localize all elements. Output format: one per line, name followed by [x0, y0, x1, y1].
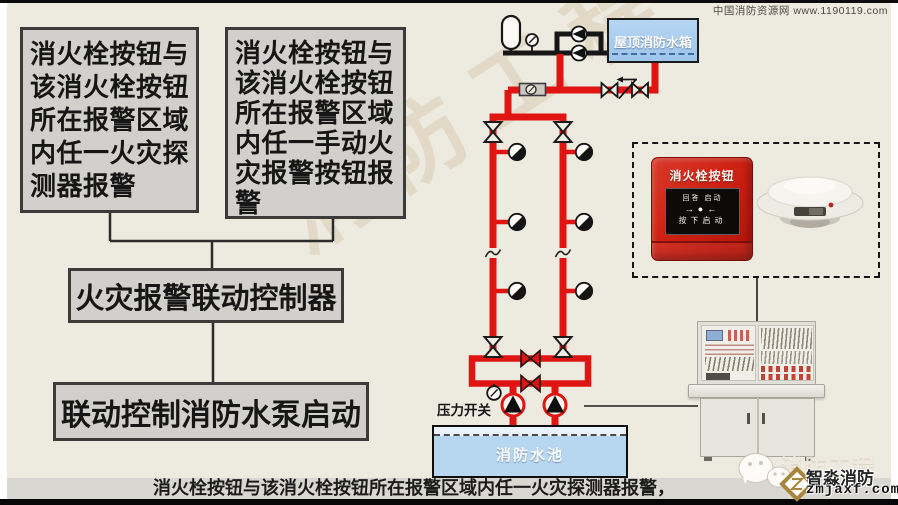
hydrant-button-base — [652, 241, 752, 260]
water-level-line — [612, 53, 694, 55]
cabinet-door-handle — [747, 413, 750, 424]
pipe-break-icons — [486, 250, 571, 258]
fire-water-pool: 消防水池 — [432, 425, 628, 478]
pressure-switch-label: 压力开关 — [437, 399, 491, 419]
slide: 消防工程 — [0, 0, 898, 505]
cabinet-label-rows — [705, 343, 754, 355]
source-watermark: 中国消防资源网 www.1190119.com — [713, 3, 888, 18]
cabinet-left-panel — [701, 325, 756, 381]
check-valve-loop-icons — [572, 27, 587, 61]
controller-box: 火灾报警联动控制器 — [68, 268, 344, 323]
cabinet-indicator-row-2 — [761, 374, 812, 380]
pump-start-box: 联动控制消防水泵启动 — [53, 382, 369, 441]
gate-valve-icons — [485, 122, 572, 357]
condition-box-detector: 消火栓按钮与该消火栓按钮所在报警区域内任一火灾探测器报警 — [20, 27, 199, 213]
cabinet-display — [706, 330, 723, 341]
hydrant-button-indicators: 回答 启动 — [666, 193, 739, 203]
hydrant-outlet-icons — [509, 144, 592, 299]
pressure-gauge-top-icon — [526, 34, 538, 53]
pool-label: 消防水池 — [434, 444, 626, 465]
cabinet-right-panel — [758, 325, 814, 381]
hydrant-button-image: 消火栓按钮 回答 启动 →●← 按下启动 — [651, 157, 753, 261]
pump-control-cabinet-image — [688, 320, 825, 462]
expansion-tank-icon — [502, 16, 520, 53]
cabinet-switch-row-2 — [761, 351, 812, 364]
caption-text: 消火栓按钮与该消火栓按钮所在报警区域内任一火灾探测器报警， — [153, 478, 675, 498]
flow-meter-icon — [520, 84, 546, 96]
cabinet-led-cluster — [728, 330, 750, 341]
hydrant-button-press-label: 按下启动 — [666, 215, 739, 226]
hydrant-button-arrows: →●← — [666, 203, 739, 215]
cabinet-desk-ledge — [688, 384, 825, 398]
cabinet-indicator-row-1 — [761, 366, 812, 372]
brand-site: zmjaxf.com — [806, 482, 898, 498]
red-pipe-network — [472, 54, 655, 427]
roof-tank-label: 屋顶消防水箱 — [614, 32, 692, 51]
fire-pump-icons — [502, 394, 566, 416]
roof-water-tank: 屋顶消防水箱 — [607, 18, 699, 63]
cabinet-door-divider — [757, 398, 759, 457]
condition-box-manual-callpoint: 消火栓按钮与该消火栓按钮所在报警区域内任一手动火灾报警按钮报警 — [225, 27, 406, 219]
pool-water-surface — [434, 427, 626, 436]
cabinet-switch-row — [705, 357, 754, 371]
hydrant-button-window: 回答 启动 →●← 按下启动 — [665, 188, 740, 235]
cabinet-buttons — [706, 373, 730, 380]
cabinet-switch-row-1 — [761, 328, 812, 349]
cabinet-foot — [704, 457, 712, 461]
caption-bar: 消火栓按钮与该消火栓按钮所在报警区域内任一火灾探测器报警， — [7, 478, 891, 499]
cabinet-door-handle — [762, 413, 765, 424]
hydrant-button-title: 消火栓按钮 — [652, 167, 752, 184]
bottom-border — [0, 499, 898, 505]
